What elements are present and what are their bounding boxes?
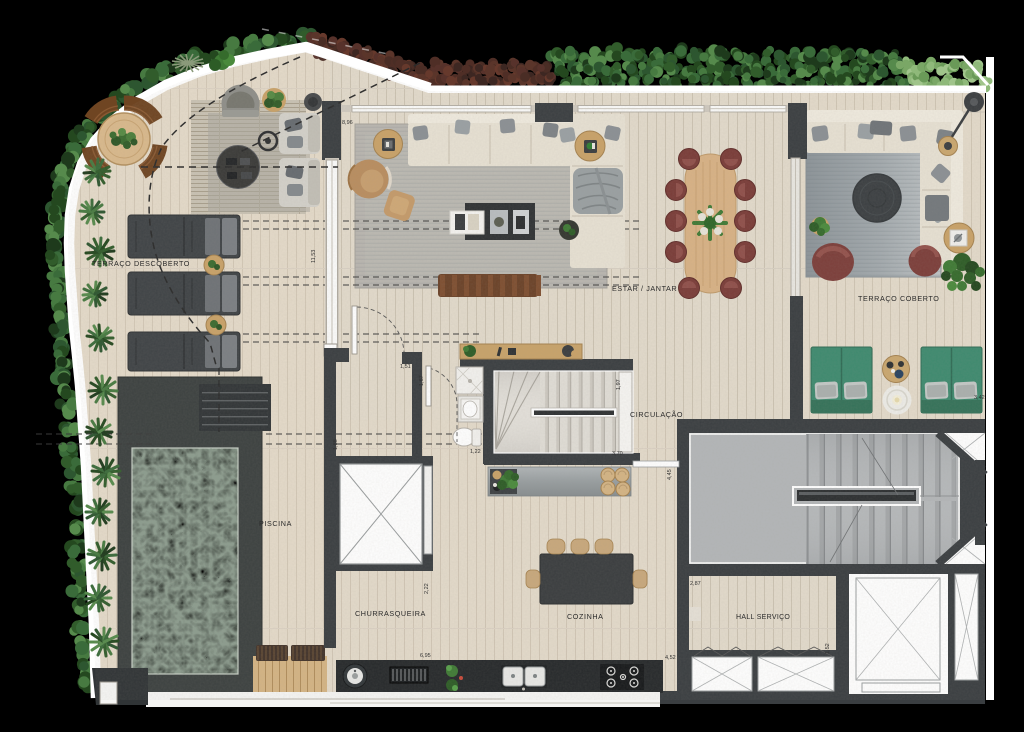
svg-text:1,67: 1,67: [419, 375, 425, 386]
svg-text:3,70: 3,70: [612, 451, 623, 457]
svg-text:COZINHA: COZINHA: [567, 612, 604, 621]
svg-text:2,22: 2,22: [424, 583, 430, 594]
svg-text:4,45: 4,45: [667, 469, 673, 480]
svg-text:1,97: 1,97: [616, 379, 622, 390]
svg-text:8,96: 8,96: [342, 120, 353, 126]
svg-text:CIRCULAÇÃO: CIRCULAÇÃO: [630, 410, 683, 419]
svg-text:ESTAR / JANTAR: ESTAR / JANTAR: [612, 284, 677, 293]
svg-text:TERRAÇO COBERTO: TERRAÇO COBERTO: [858, 294, 939, 303]
svg-text:4,52: 4,52: [665, 655, 676, 661]
svg-text:11,53: 11,53: [311, 250, 317, 263]
svg-text:CHURRASQUEIRA: CHURRASQUEIRA: [355, 609, 426, 618]
svg-text:1,22: 1,22: [470, 449, 481, 455]
svg-text:TERRAÇO DESCOBERTO: TERRAÇO DESCOBERTO: [92, 259, 190, 268]
svg-text:1,52: 1,52: [825, 643, 831, 654]
svg-text:6,95: 6,95: [420, 653, 431, 659]
svg-text:3,42: 3,42: [974, 395, 985, 401]
svg-text:1,51: 1,51: [400, 364, 411, 370]
svg-text:PISCINA: PISCINA: [259, 519, 292, 528]
svg-text:1,88: 1,88: [333, 439, 339, 450]
svg-text:2,87: 2,87: [690, 581, 701, 587]
svg-text:HALL SERVIÇO: HALL SERVIÇO: [736, 614, 790, 621]
